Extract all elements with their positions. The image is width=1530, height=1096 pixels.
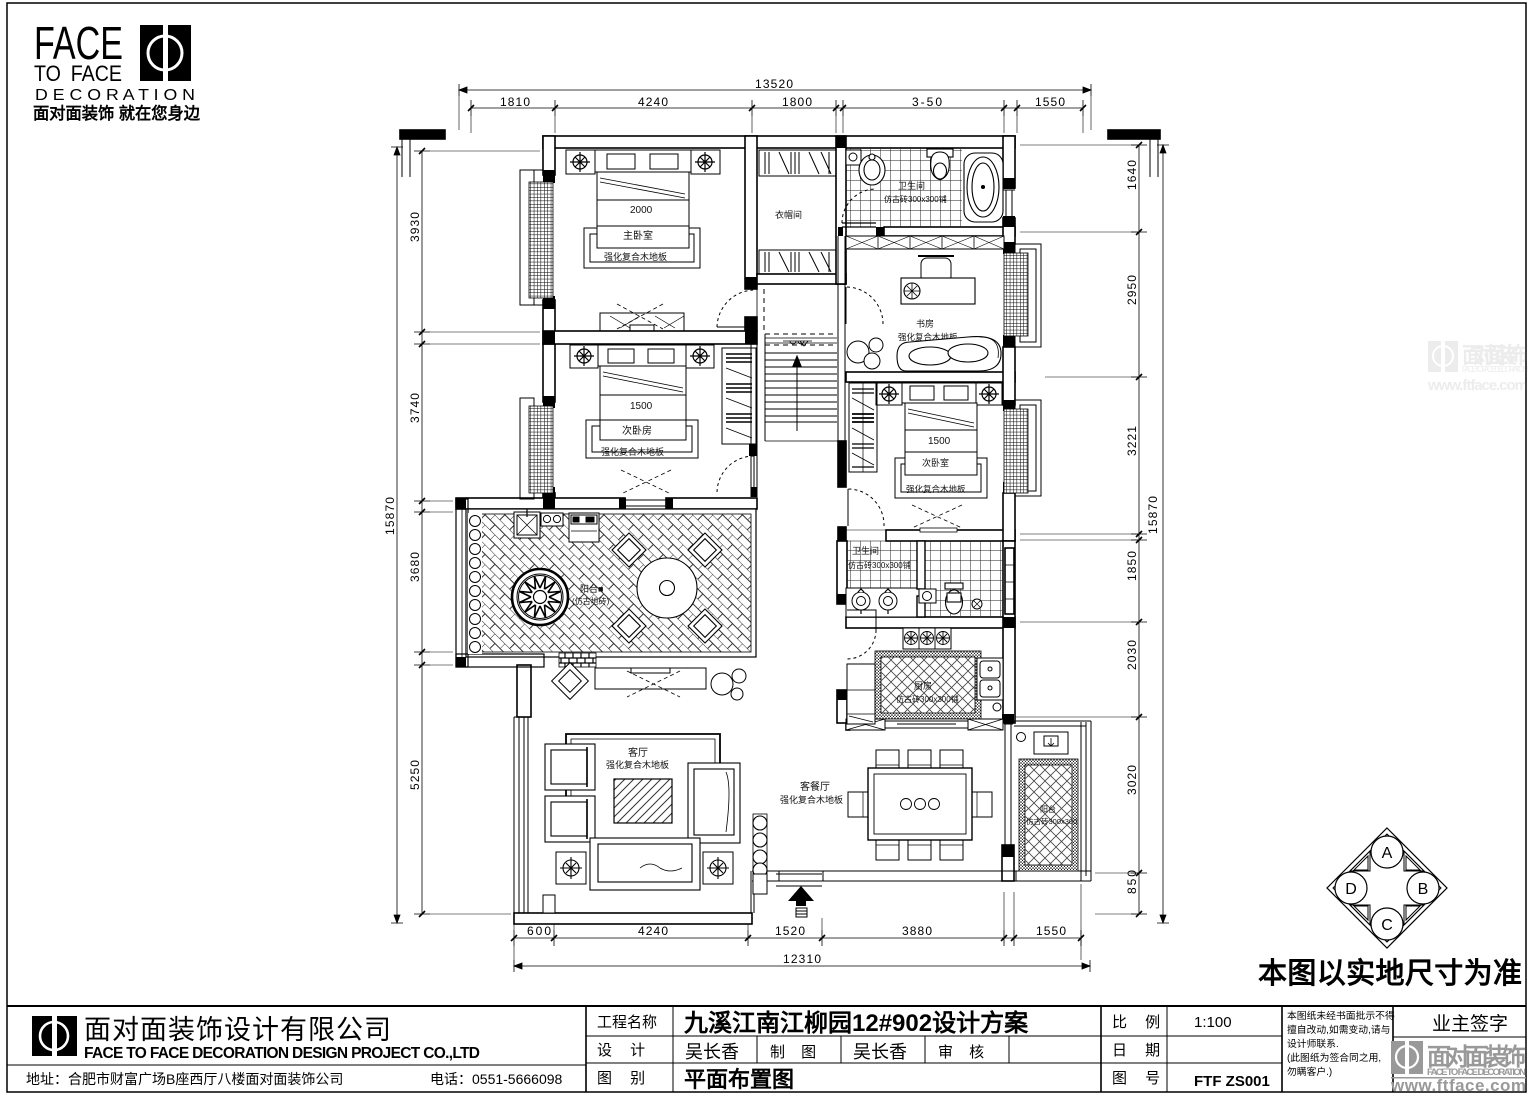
svg-text:3020: 3020 bbox=[1125, 765, 1139, 795]
svg-text:次卧室: 次卧室 bbox=[922, 457, 949, 468]
svg-text:1810: 1810 bbox=[500, 95, 530, 109]
svg-text:1800: 1800 bbox=[782, 95, 812, 109]
svg-text:审 核: 审 核 bbox=[938, 1044, 984, 1061]
svg-text:www.ftface.com: www.ftface.com bbox=[1390, 1076, 1526, 1095]
svg-text:勿瞒客户.): 勿瞒客户.) bbox=[1287, 1065, 1332, 1078]
svg-text:FACE TO FACE DECORATION: FACE TO FACE DECORATION bbox=[1462, 365, 1528, 374]
svg-text:3-50: 3-50 bbox=[912, 95, 942, 109]
svg-text:4240: 4240 bbox=[638, 95, 668, 109]
svg-text:1500: 1500 bbox=[928, 436, 951, 447]
svg-text:1640: 1640 bbox=[1125, 160, 1139, 190]
svg-text:仿古砖300x300: 仿古砖300x300 bbox=[1026, 816, 1077, 826]
svg-text:图 号: 图 号 bbox=[1112, 1070, 1160, 1087]
svg-text:阳台: 阳台 bbox=[1040, 804, 1056, 814]
svg-text:吴长香: 吴长香 bbox=[853, 1042, 907, 1062]
svg-text:本图纸未经书面批示不得: 本图纸未经书面批示不得 bbox=[1287, 1009, 1395, 1022]
svg-text:(此图纸为签合同之用,: (此图纸为签合同之用, bbox=[1287, 1051, 1381, 1064]
svg-text:比 例: 比 例 bbox=[1112, 1014, 1160, 1031]
svg-text:A: A bbox=[1382, 845, 1393, 862]
svg-text:1550: 1550 bbox=[1036, 924, 1066, 938]
svg-text:面对面装饰 就在您身边: 面对面装饰 就在您身边 bbox=[33, 103, 200, 123]
svg-text:13520: 13520 bbox=[755, 77, 793, 91]
svg-text:12310: 12310 bbox=[783, 952, 821, 966]
svg-text:九溪江南江柳园12#902设计方案: 九溪江南江柳园12#902设计方案 bbox=[683, 1009, 1029, 1037]
svg-text:5250: 5250 bbox=[408, 760, 422, 790]
svg-text:制 图: 制 图 bbox=[770, 1044, 816, 1061]
svg-text:3880: 3880 bbox=[902, 924, 932, 938]
svg-text:卫生间: 卫生间 bbox=[852, 545, 879, 556]
svg-text:1520: 1520 bbox=[775, 924, 805, 938]
svg-text:3740: 3740 bbox=[408, 393, 422, 423]
svg-text:客餐厅: 客餐厅 bbox=[800, 780, 830, 793]
svg-text:C: C bbox=[1381, 917, 1393, 934]
svg-text:3680: 3680 bbox=[408, 552, 422, 582]
svg-text:图 别: 图 别 bbox=[597, 1070, 645, 1087]
svg-text:阳台■: 阳台■ bbox=[580, 583, 603, 594]
svg-text:次卧房: 次卧房 bbox=[622, 424, 652, 437]
svg-text:15870: 15870 bbox=[1146, 496, 1160, 534]
svg-text:设计师联系.: 设计师联系. bbox=[1287, 1037, 1339, 1050]
svg-text:1850: 1850 bbox=[1125, 551, 1139, 581]
svg-text:电话：0551-5666098: 电话：0551-5666098 bbox=[430, 1071, 563, 1087]
svg-text:吴长香: 吴长香 bbox=[685, 1042, 739, 1062]
svg-text:面对面装饰设计有限公司: 面对面装饰设计有限公司 bbox=[84, 1015, 392, 1045]
svg-text:仿古砖300x300铺: 仿古砖300x300铺 bbox=[884, 194, 947, 204]
svg-text:平面布置图: 平面布置图 bbox=[684, 1067, 794, 1092]
svg-text:4240: 4240 bbox=[638, 924, 668, 938]
svg-text:D: D bbox=[1345, 881, 1357, 898]
svg-text:2950: 2950 bbox=[1125, 275, 1139, 305]
svg-text:www.ftface.com: www.ftface.com bbox=[1427, 377, 1528, 394]
svg-text:3930: 3930 bbox=[408, 212, 422, 242]
svg-text:600: 600 bbox=[527, 924, 551, 938]
svg-text:2000: 2000 bbox=[630, 205, 653, 216]
svg-text:强化复合木地板: 强化复合木地板 bbox=[906, 484, 966, 494]
svg-text:D E C O R A T I O N: D E C O R A T I O N bbox=[35, 87, 195, 104]
svg-text:强化复合木地板: 强化复合木地板 bbox=[606, 759, 669, 770]
svg-text:1500: 1500 bbox=[630, 401, 653, 412]
svg-text:衣帽间: 衣帽间 bbox=[775, 209, 802, 220]
svg-text:FTF ZS001: FTF ZS001 bbox=[1194, 1073, 1270, 1090]
svg-text:FACE TO FACE DECORATION DESIGN: FACE TO FACE DECORATION DESIGN PROJECT C… bbox=[84, 1045, 480, 1062]
svg-text:强化复合木地板: 强化复合木地板 bbox=[780, 794, 843, 805]
svg-text:1550: 1550 bbox=[1035, 95, 1065, 109]
svg-text:擅自改动,如需变动,请与: 擅自改动,如需变动,请与 bbox=[1287, 1023, 1390, 1036]
svg-text:2030: 2030 bbox=[1125, 640, 1139, 670]
svg-text:地址：合肥市财富广场B座西厅八楼面对面装饰公司: 地址：合肥市财富广场B座西厅八楼面对面装饰公司 bbox=[26, 1071, 343, 1087]
svg-text:业主签字: 业主签字 bbox=[1432, 1013, 1508, 1035]
svg-text:主卧室: 主卧室 bbox=[623, 229, 653, 242]
svg-text:B: B bbox=[1418, 881, 1429, 898]
svg-text:15870: 15870 bbox=[383, 497, 397, 535]
svg-text:3221: 3221 bbox=[1125, 426, 1139, 456]
svg-text:工程名称: 工程名称 bbox=[597, 1014, 657, 1031]
svg-text:仿古砖300x300铺: 仿古砖300x300铺 bbox=[848, 560, 911, 570]
svg-text:850: 850 bbox=[1125, 870, 1139, 894]
svg-text:日 期: 日 期 bbox=[1112, 1042, 1160, 1059]
svg-text:客厅: 客厅 bbox=[628, 746, 648, 759]
svg-text:仿古砖300x300铺: 仿古砖300x300铺 bbox=[896, 694, 959, 704]
svg-text:1:100: 1:100 bbox=[1194, 1014, 1232, 1031]
svg-text:强化复合木地板: 强化复合木地板 bbox=[601, 446, 664, 457]
svg-text:设 计: 设 计 bbox=[597, 1042, 645, 1059]
svg-text:强化复合木地板: 强化复合木地板 bbox=[604, 251, 667, 262]
svg-text:TO FACE: TO FACE bbox=[34, 61, 122, 86]
svg-text:卫生间: 卫生间 bbox=[898, 180, 925, 191]
svg-text:书房: 书房 bbox=[916, 318, 934, 329]
svg-text:本图以实地尺寸为准: 本图以实地尺寸为准 bbox=[1258, 956, 1522, 990]
svg-text:厨房: 厨房 bbox=[914, 680, 932, 691]
svg-text:(仿古地砖): (仿古地砖) bbox=[572, 596, 610, 606]
